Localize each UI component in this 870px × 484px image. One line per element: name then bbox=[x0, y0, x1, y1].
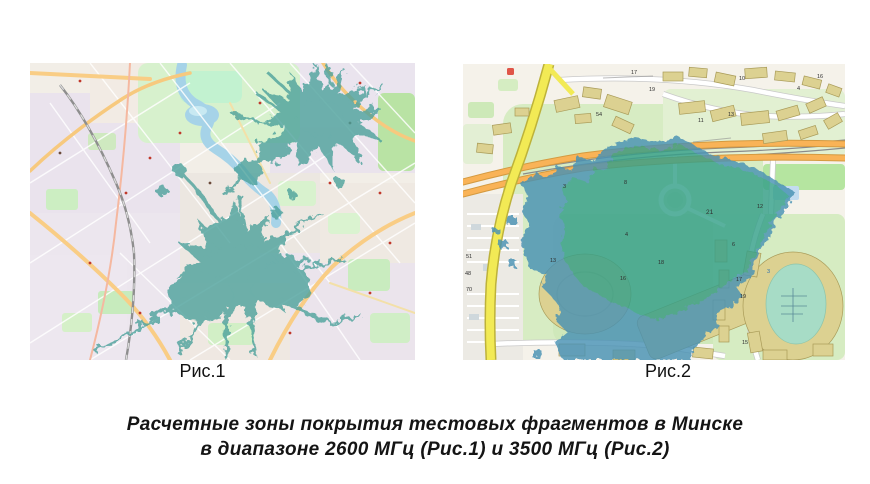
map-label: 13 bbox=[728, 112, 734, 118]
map-figure-1 bbox=[30, 63, 415, 360]
map-label: 13 bbox=[550, 258, 556, 264]
map-label: 12 bbox=[757, 204, 763, 210]
map-label: 8 bbox=[624, 180, 627, 186]
map-label: 6 bbox=[732, 242, 735, 248]
map-label: 3 bbox=[563, 184, 566, 190]
map-label: 19 bbox=[649, 87, 655, 93]
map-label: 10 bbox=[739, 76, 745, 82]
map1-canvas bbox=[30, 63, 415, 360]
map-label: 21 bbox=[706, 209, 714, 216]
map-label: 19 bbox=[740, 294, 746, 300]
map-label: 3 bbox=[767, 269, 770, 275]
map-label: 51 bbox=[466, 254, 472, 260]
main-caption-line1: Расчетные зоны покрытия тестовых фрагмен… bbox=[0, 412, 870, 437]
map-label: 48 bbox=[465, 271, 471, 277]
map-label: 15 bbox=[742, 340, 748, 346]
map-label: 4 bbox=[797, 86, 800, 92]
main-caption-line2: в диапазоне 2600 МГц (Рис.1) и 3500 МГц … bbox=[0, 437, 870, 462]
map-label: 11 bbox=[698, 118, 704, 124]
map-label: 17 bbox=[631, 70, 637, 76]
red-marker-icon bbox=[507, 68, 514, 75]
map-label: 54 bbox=[596, 112, 602, 118]
map2-canvas: 54 17 19 10 4 16 11 13 3 8 21 6 4 51 48 … bbox=[463, 64, 845, 360]
figure1-caption: Рис.1 bbox=[10, 361, 395, 385]
map-label: 4 bbox=[625, 232, 628, 238]
map-label: 70 bbox=[466, 287, 472, 293]
map-label: 16 bbox=[620, 276, 626, 282]
map-label: 18 bbox=[658, 260, 664, 266]
map-label: 16 bbox=[817, 74, 823, 80]
main-caption: Расчетные зоны покрытия тестовых фрагмен… bbox=[0, 412, 870, 462]
figure2-caption: Рис.2 bbox=[477, 361, 859, 385]
map-label: 17 bbox=[736, 277, 742, 283]
map-figure-2: 54 17 19 10 4 16 11 13 3 8 21 6 4 51 48 … bbox=[463, 64, 845, 360]
